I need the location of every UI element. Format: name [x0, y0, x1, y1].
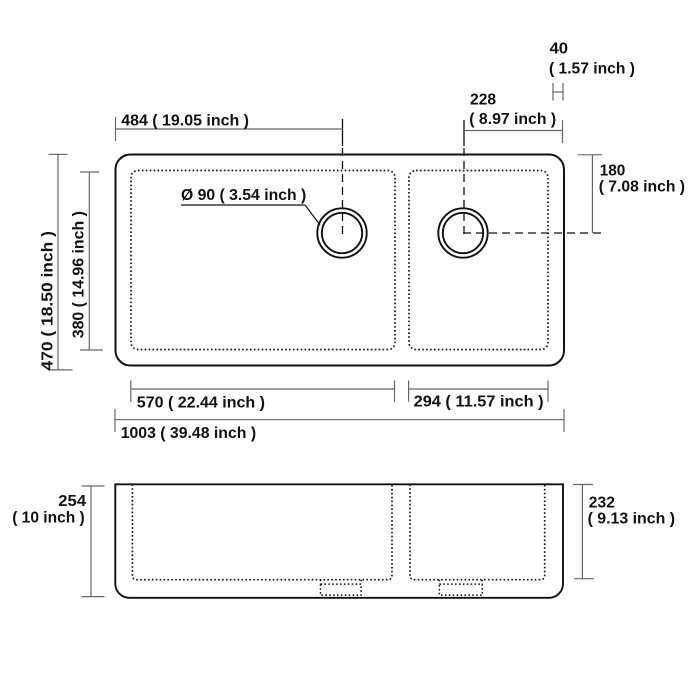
svg-text:228: 228 — [470, 92, 496, 109]
svg-text:380 ( 14.96 inch ): 380 ( 14.96 inch ) — [71, 211, 88, 338]
svg-text:( 9.13 inch ): ( 9.13 inch ) — [588, 511, 675, 528]
svg-text:Ø 90 ( 3.54 inch ): Ø 90 ( 3.54 inch ) — [181, 187, 306, 204]
svg-text:254: 254 — [58, 493, 86, 510]
svg-text:( 8.97 inch ): ( 8.97 inch ) — [469, 111, 556, 128]
svg-text:1003 ( 39.48 inch ): 1003 ( 39.48 inch ) — [121, 425, 256, 442]
svg-text:570 ( 22.44 inch ): 570 ( 22.44 inch ) — [137, 395, 265, 412]
svg-text:( 10 inch ): ( 10 inch ) — [12, 510, 85, 527]
svg-text:470 ( 18.50 inch ): 470 ( 18.50 inch ) — [40, 231, 57, 370]
svg-text:232: 232 — [589, 495, 615, 512]
svg-text:180: 180 — [600, 163, 626, 180]
svg-text:484 ( 19.05 inch ): 484 ( 19.05 inch ) — [121, 113, 249, 130]
svg-text:294 ( 11.57 inch ): 294 ( 11.57 inch ) — [414, 394, 544, 411]
svg-text:( 1.57 inch ): ( 1.57 inch ) — [549, 61, 635, 78]
svg-text:( 7.08 inch ): ( 7.08 inch ) — [599, 179, 685, 196]
svg-text:40: 40 — [550, 41, 569, 58]
